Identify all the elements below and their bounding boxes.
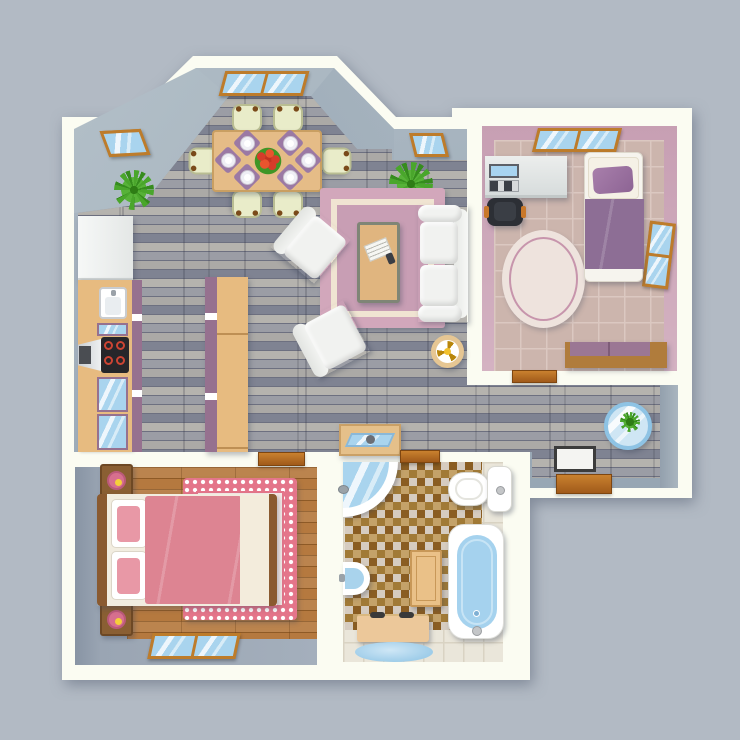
window-glass xyxy=(645,255,668,286)
laptop-screen xyxy=(489,164,519,178)
burner xyxy=(104,341,113,350)
nightstand xyxy=(100,603,133,636)
flower-centerpiece xyxy=(251,146,285,176)
chair-armrest xyxy=(521,206,526,218)
bathtub xyxy=(448,524,504,639)
kitchen-sink xyxy=(99,287,127,319)
skylight-window-right xyxy=(409,133,449,157)
lamp-bulb xyxy=(115,479,122,486)
pillow-case xyxy=(117,558,140,594)
round-glass-table xyxy=(604,402,652,450)
lamp-bulb xyxy=(115,618,122,625)
window-glass xyxy=(104,132,147,154)
bath-mat-inner xyxy=(416,556,436,601)
toilet-seat xyxy=(455,478,483,500)
entry-doormat xyxy=(556,474,612,494)
wooden-bath-mat xyxy=(410,550,442,607)
cooktop xyxy=(101,337,129,373)
coffee-table xyxy=(357,222,400,303)
plate xyxy=(240,170,255,185)
window-glass xyxy=(222,74,265,93)
plate xyxy=(283,136,298,151)
extractor-vent xyxy=(79,346,91,364)
storage-bench xyxy=(357,614,429,642)
fan-center xyxy=(444,348,451,355)
hall-mat xyxy=(554,446,596,472)
toilet-tank xyxy=(487,466,512,512)
bathtub-drain xyxy=(473,610,480,617)
office-chair-seat xyxy=(494,202,516,221)
laptop-keyboard xyxy=(489,180,519,192)
plate xyxy=(240,136,255,151)
window-glass xyxy=(536,131,578,149)
dining-chair xyxy=(322,148,352,175)
table-plant xyxy=(620,412,640,432)
cabinet-glass-door xyxy=(97,377,128,412)
bench-handle xyxy=(399,612,414,618)
window-glass xyxy=(576,131,618,149)
dining-chair xyxy=(232,190,262,218)
bathroom-door-threshold xyxy=(400,450,440,463)
basin-bowl xyxy=(345,568,364,589)
toilet-bowl xyxy=(448,472,490,506)
sofa-armrest xyxy=(418,205,462,222)
chair-armrest xyxy=(484,206,489,218)
desk xyxy=(485,156,567,198)
refrigerator xyxy=(78,216,133,280)
dining-chair xyxy=(273,104,303,132)
dining-chair xyxy=(232,104,262,132)
dresser-top xyxy=(570,342,650,356)
flush-button xyxy=(496,486,505,495)
bedroom-door-threshold xyxy=(512,370,557,383)
shower-head xyxy=(338,485,349,494)
hallway-wall-wedge-right xyxy=(660,385,678,488)
bedroom-skylight xyxy=(532,128,622,152)
accent-pillow xyxy=(592,166,634,195)
nightstand xyxy=(100,464,133,497)
sink-basin xyxy=(105,297,121,315)
office-chair xyxy=(487,198,523,226)
window-glass xyxy=(193,636,237,656)
bathtub-faucet xyxy=(472,626,482,636)
tray-knob xyxy=(366,435,375,444)
window-glass xyxy=(263,74,306,93)
console-table xyxy=(339,424,401,456)
burner xyxy=(104,356,113,365)
master-wall-window xyxy=(147,633,241,659)
kitchen-island xyxy=(205,277,248,452)
sink-faucet xyxy=(111,290,116,296)
bed-blanket xyxy=(585,199,644,269)
skylight-window-dining xyxy=(219,71,310,96)
plate xyxy=(221,153,236,168)
side-table xyxy=(431,335,464,368)
phone xyxy=(385,252,396,265)
oval-rug-ring xyxy=(509,237,578,321)
kitchen-counter-edge xyxy=(132,280,142,452)
window-glass xyxy=(413,136,445,154)
single-bed xyxy=(584,152,643,282)
bed-pillow xyxy=(111,551,147,600)
floor-plan-illustration xyxy=(0,0,740,740)
bathtub-water xyxy=(457,535,497,629)
island-front xyxy=(205,277,217,452)
oval-rug xyxy=(502,230,585,328)
master-door-threshold xyxy=(258,452,305,466)
dresser xyxy=(565,342,667,368)
cabinet-glass-door xyxy=(97,323,128,336)
cabinet-glass-door xyxy=(97,414,128,450)
basin-faucet xyxy=(339,574,345,582)
sofa-armrest xyxy=(418,305,462,322)
window-glass xyxy=(649,224,672,255)
bench-handle xyxy=(370,612,385,618)
bed-duvet xyxy=(145,496,242,604)
plate xyxy=(301,153,316,168)
bed-footboard xyxy=(269,494,277,606)
bed-pillow xyxy=(111,499,147,548)
sofa xyxy=(418,205,468,322)
potted-plant xyxy=(114,170,154,210)
bed-sheet xyxy=(240,496,270,604)
sofa-cushion xyxy=(420,222,458,264)
sofa-cushion xyxy=(420,265,458,306)
bathroom-rug xyxy=(355,642,433,662)
island-top xyxy=(217,277,248,452)
burner xyxy=(116,341,125,350)
plate xyxy=(283,170,298,185)
pillow-case xyxy=(117,506,140,542)
burner xyxy=(116,356,125,365)
double-bed xyxy=(97,494,277,606)
window-glass xyxy=(151,636,195,656)
